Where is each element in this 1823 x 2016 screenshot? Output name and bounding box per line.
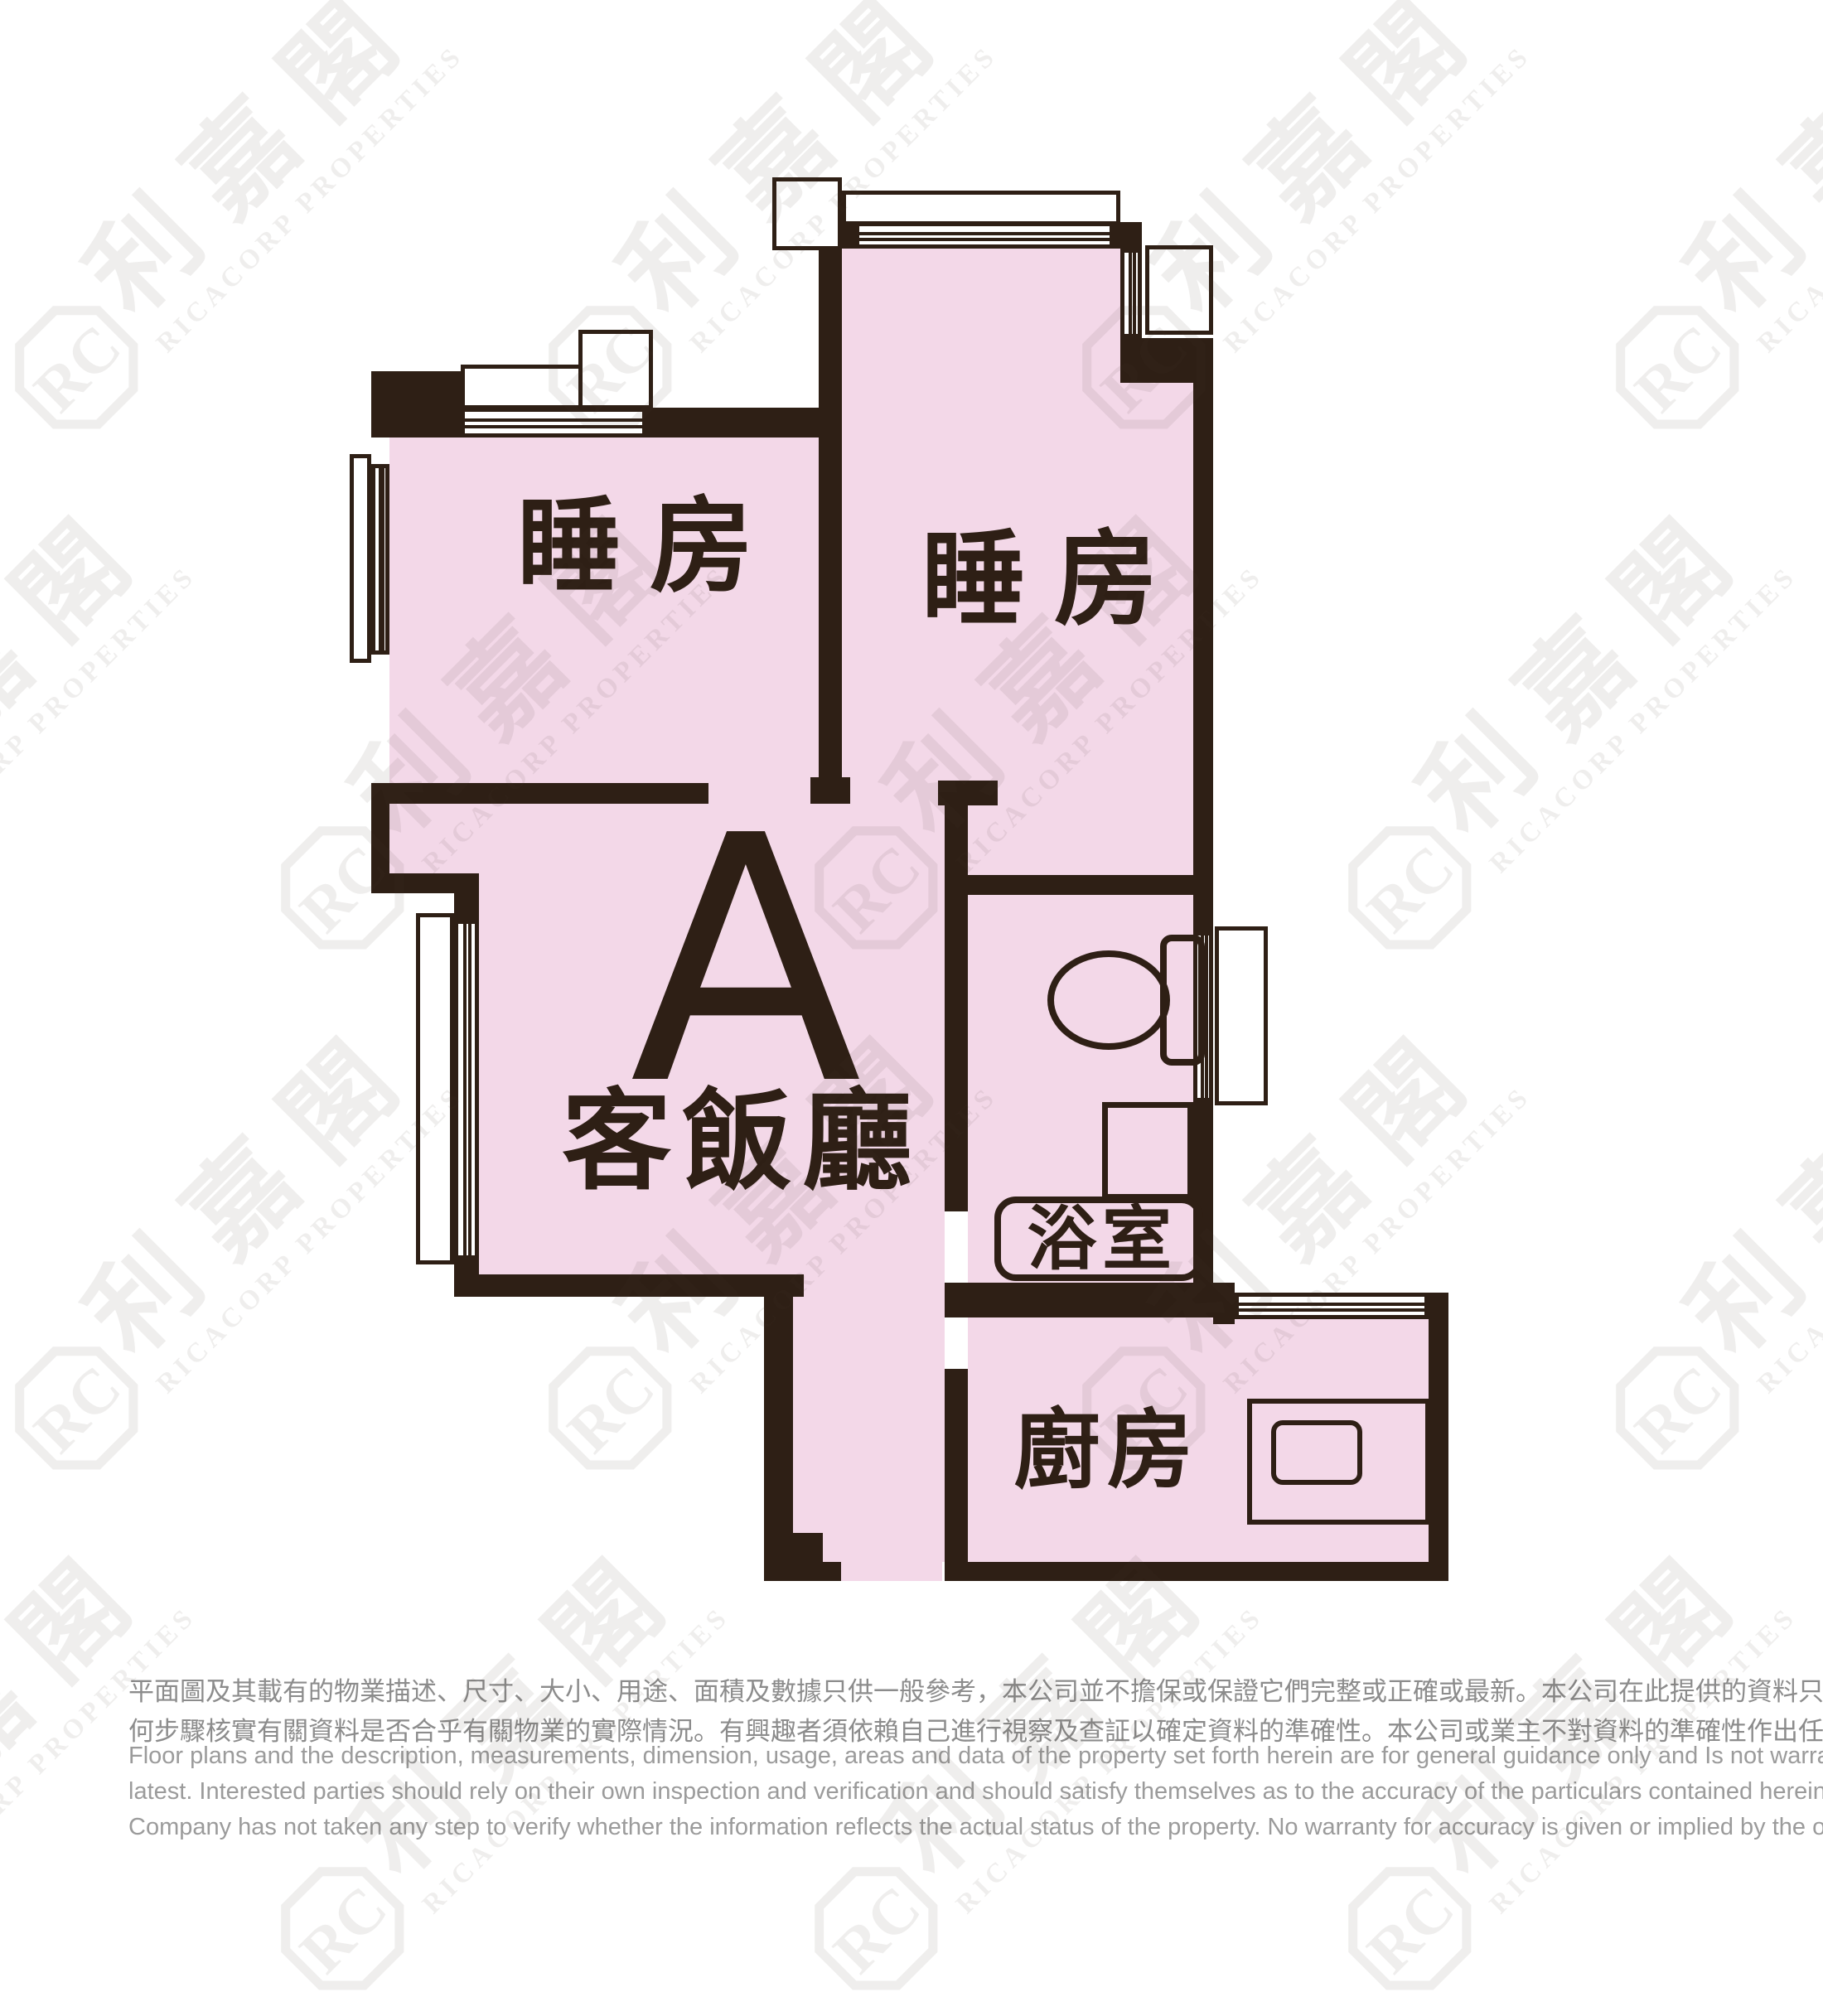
disclaimer-en-line-1: Floor plans and the description, measure… [128, 1738, 1699, 1774]
window-pane-line [465, 418, 642, 422]
wall [371, 873, 479, 893]
wall [1213, 1283, 1235, 1324]
sink [1102, 1102, 1193, 1200]
room-label-kitchen: 廚房 [1014, 1407, 1201, 1493]
window [1120, 249, 1142, 338]
wall [764, 1533, 823, 1562]
window-pane-line [463, 924, 467, 1255]
window-pane-line [1133, 253, 1136, 334]
wall [1193, 383, 1213, 931]
room-label-bedroom-left: 睡房 [517, 496, 782, 599]
wall [1114, 222, 1142, 249]
window [855, 222, 1114, 249]
svg-text:RC: RC [820, 1873, 934, 1986]
ricacorp-logo-icon: RC [788, 1840, 964, 2016]
wall [371, 371, 461, 438]
wall [764, 1562, 841, 1581]
window-bay [350, 454, 371, 663]
toilet-icon [1037, 930, 1208, 1079]
wall [1429, 1293, 1448, 1581]
window-pane-line [859, 238, 1110, 241]
window-pane-line [1239, 1308, 1424, 1312]
window-bay [1145, 245, 1213, 335]
room-label-bathroom: 浴室 [1027, 1204, 1177, 1274]
wall [842, 222, 855, 249]
disclaimer-zh-line-1: 平面圖及其載有的物業描述、尺寸、大小、用途、面積及數據只供一般參考，本公司並不擔… [128, 1672, 1699, 1712]
window-bay [842, 191, 1120, 225]
wall [646, 408, 819, 438]
window-bay [578, 330, 653, 409]
disclaimer-en-line-3: Company has not taken any step to verify… [128, 1810, 1699, 1845]
window-pane-line [859, 232, 1110, 235]
wall [953, 875, 1213, 895]
window-bay [772, 177, 842, 250]
floor-plan: 睡房 睡房 A 客飯廳 浴室 廚房 [0, 0, 1823, 1823]
wall [945, 1369, 968, 1562]
room-fill-corridor [793, 1297, 945, 1562]
window-bay [416, 913, 454, 1264]
svg-text:RC: RC [1354, 1873, 1468, 1986]
ricacorp-logo-icon: RC [254, 1840, 430, 2016]
window-pane-line [468, 924, 471, 1255]
window-bay [461, 365, 590, 409]
wall [945, 1562, 1448, 1581]
floorplan-page: { "colors":{ "wall":"#2e1f15", "room_fil… [0, 0, 1823, 1823]
wall [819, 249, 842, 783]
room-label-living-dining: 客飯廳 [562, 1087, 923, 1197]
window-pane-line [1239, 1303, 1424, 1306]
wall [945, 805, 968, 1211]
wall [454, 1274, 804, 1297]
window [461, 408, 646, 438]
wall [764, 1297, 793, 1533]
window [371, 464, 389, 655]
ricacorp-logo-icon: RC [1322, 1840, 1497, 2016]
room-label-bedroom-right: 睡房 [921, 529, 1187, 632]
window-bay [1215, 926, 1268, 1105]
window-pane-line [465, 425, 642, 428]
window [454, 920, 479, 1259]
room-fill-entrance-gap [841, 1562, 942, 1581]
disclaimer-en-line-2: latest. Interested parties should rely o… [128, 1774, 1699, 1810]
wall [1120, 338, 1213, 383]
wall [945, 1283, 1235, 1317]
wall [938, 781, 998, 805]
disclaimer-english: Floor plans and the description, measure… [128, 1738, 1699, 1845]
kitchen-sink [1271, 1420, 1362, 1485]
window-pane-line [381, 468, 384, 650]
wall [454, 893, 479, 920]
svg-text:RC: RC [287, 1873, 400, 1986]
window-pane-line [1129, 253, 1132, 334]
window [1235, 1293, 1429, 1319]
